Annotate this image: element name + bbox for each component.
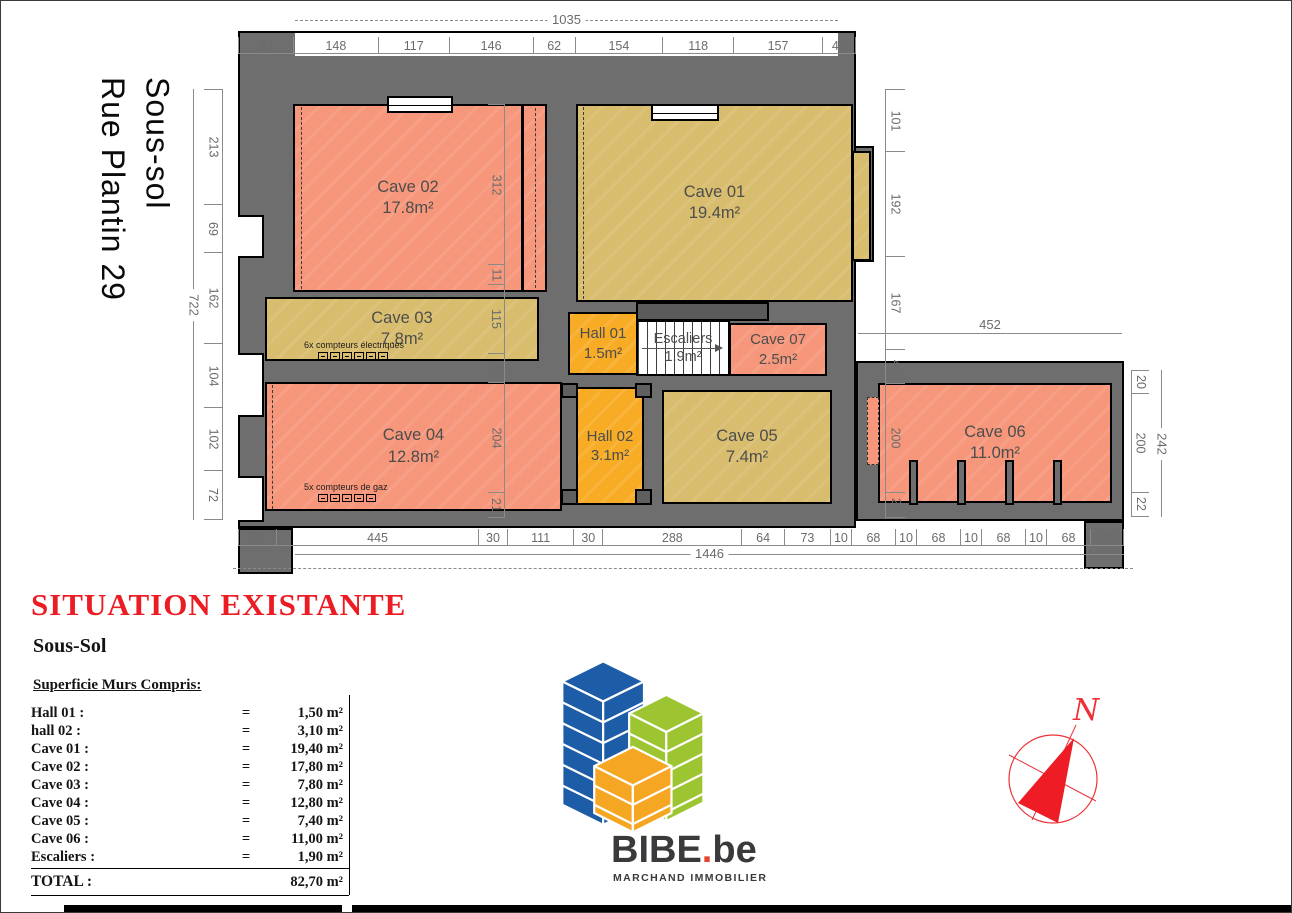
total-row: TOTAL : 82,70 m² — [31, 873, 343, 891]
total-value: 82,70 m² — [253, 874, 343, 891]
gas-meter-icons — [318, 494, 376, 502]
isolation-strip — [522, 104, 547, 292]
dim-segment: 40 — [1091, 529, 1124, 545]
table-border-bottom — [31, 895, 349, 896]
dim-value: 111 — [530, 531, 551, 545]
dim-segment: 154 — [576, 37, 663, 53]
legend-row: Cave 04 :=12,80 m² — [31, 795, 343, 813]
legend-section-heading: Superficie Murs Compris: — [33, 677, 201, 694]
dim-chain-far-right: 2020022 — [1131, 370, 1149, 517]
dim-value: 40 — [889, 359, 903, 375]
dim-segment: 62 — [534, 37, 576, 53]
dim-value: 72 — [206, 487, 220, 503]
area-table: Hall 01 :=1,50 m²hall 02 :=3,10 m²Cave 0… — [31, 705, 343, 867]
room-area: 19.4m² — [689, 203, 740, 224]
dim-value: 69 — [206, 221, 220, 237]
window-cave-01 — [651, 104, 719, 121]
dim-value: 204 — [489, 426, 503, 449]
dim-chain-right: 1011921674020022 — [885, 89, 905, 518]
dim-segment: 72 — [204, 471, 222, 520]
room-hall-02: Hall 02 3.1m² — [576, 387, 644, 505]
dim-value: 93 — [258, 39, 274, 53]
room-area: 2.5m² — [759, 350, 797, 370]
drawing-title: SITUATION EXISTANTE — [31, 587, 406, 623]
dim-total-top: 1035 — [295, 20, 838, 21]
room-name: Hall 02 — [587, 427, 634, 447]
dim-value: 10 — [833, 531, 849, 545]
dim-segment: 445 — [277, 529, 479, 545]
meter-icon — [354, 352, 364, 360]
dim-segment: 68 — [917, 529, 961, 545]
dim-value: 22 — [889, 497, 903, 513]
dim-segment: 148 — [294, 37, 379, 53]
table-border-right — [349, 695, 350, 895]
room-area: 12.8m² — [388, 447, 439, 468]
dim-value: 10 — [963, 531, 979, 545]
dim-segment: 288 — [603, 529, 742, 545]
dim-value: 10 — [898, 531, 914, 545]
dim-segment: 20 — [1132, 370, 1149, 394]
dim-segment: 10 — [896, 529, 917, 545]
dim-value: 445 — [366, 531, 389, 545]
wall-stub — [561, 383, 578, 398]
room-escaliers: Escaliers 1.9m² — [636, 320, 730, 376]
room-cave-07: Cave 07 2.5m² — [729, 323, 827, 376]
legend-row: Cave 01 :=19,40 m² — [31, 741, 343, 759]
room-cave-01-bay — [852, 151, 871, 261]
dim-value: 68 — [931, 531, 947, 545]
wall-tooth — [957, 460, 966, 505]
room-name: Cave 05 — [716, 426, 777, 447]
meter-icon — [342, 494, 352, 502]
dim-value: 452 — [974, 317, 1006, 332]
dim-chain-left: 2136916210410272 — [204, 89, 223, 520]
room-area: 3.1m² — [591, 446, 629, 466]
logo-tagline: MARCHAND IMMOBILIER — [613, 872, 767, 884]
stair-lintel-wall — [636, 302, 769, 321]
dim-value: 118 — [687, 39, 709, 53]
dim-value: 104 — [206, 364, 220, 387]
wall-stub — [635, 489, 652, 505]
room-name: Cave 02 — [377, 177, 438, 198]
dim-segment: 21 — [488, 493, 504, 518]
dim-segment: 192 — [886, 152, 905, 257]
dim-segment: 157 — [734, 37, 822, 53]
dim-value: 102 — [206, 428, 220, 451]
dim-segment: 11 — [488, 265, 504, 285]
dim-segment: 69 — [204, 205, 222, 253]
annotation-electric-meters: 6x compteurs électriques — [304, 340, 404, 350]
dim-value: 68 — [865, 531, 881, 545]
dim-value: 1035 — [547, 12, 586, 27]
legend-row: hall 02 :=3,10 m² — [31, 723, 343, 741]
dim-value: 1446 — [690, 546, 729, 561]
dim-segment: 93 — [238, 37, 294, 53]
dim-segment: 30 — [479, 529, 508, 545]
dim-value: 288 — [661, 531, 684, 545]
dim-value: 200 — [1134, 432, 1148, 455]
legend-row: Cave 02 :=17,80 m² — [31, 759, 343, 777]
wall-stub — [635, 383, 652, 398]
room-name: Escaliers — [654, 330, 713, 348]
dim-value: 30 — [485, 531, 501, 545]
level-subtitle: Sous-Sol — [33, 635, 106, 658]
dim-value: 213 — [206, 136, 220, 159]
logo-tld: be — [712, 829, 756, 871]
titleblock-edge — [64, 905, 1292, 913]
room-area: 17.8m² — [382, 198, 433, 219]
dim-segment: 22 — [886, 493, 905, 518]
titleblock-edge-gap — [342, 905, 352, 913]
dim-value: 115 — [489, 308, 503, 330]
window-cave-02 — [387, 96, 453, 113]
room-cave-01: Cave 01 19.4m² — [576, 104, 853, 302]
dim-segment: 40 — [823, 37, 856, 53]
axis-line-bottom — [233, 568, 1133, 569]
dim-value: 11 — [489, 267, 503, 282]
dim-value: 64 — [755, 531, 771, 545]
room-name: Cave 03 — [371, 308, 432, 329]
legend-row: Cave 03 :=7,80 m² — [31, 777, 343, 795]
bibe-logo-wordmark: BIBE.be — [611, 829, 757, 872]
facade-notch-1 — [238, 215, 264, 258]
door-opening-cave-06 — [867, 397, 879, 465]
room-name: Hall 01 — [580, 324, 627, 344]
facade-notch-3 — [238, 476, 264, 522]
meter-icon — [366, 352, 376, 360]
dim-value: 32 — [489, 360, 503, 376]
dim-value: 200 — [889, 426, 903, 449]
electric-meter-icons — [318, 352, 388, 360]
dim-value: 62 — [546, 39, 562, 53]
dim-segment: 200 — [1132, 394, 1149, 492]
dim-value: 20 — [1134, 374, 1148, 390]
room-area: 1.5m² — [584, 344, 622, 364]
annotation-gas-meters: 5x compteurs de gaz — [304, 482, 388, 492]
meter-icon — [366, 494, 376, 502]
dim-value: 157 — [767, 39, 790, 53]
wall-liner-dashed — [301, 107, 302, 289]
dim-segment: 117 — [379, 37, 450, 53]
room-cave-05: Cave 05 7.4m² — [662, 390, 832, 504]
room-name: Cave 07 — [750, 330, 806, 350]
dim-segment: 162 — [204, 253, 222, 344]
dim-value: 101 — [889, 109, 903, 132]
level-label: Sous-sol — [135, 77, 179, 407]
dim-segment: 200 — [886, 384, 905, 493]
legend-row: Cave 06 :=11,00 m² — [31, 831, 343, 849]
dim-value: 722 — [187, 289, 202, 321]
dim-segment: 312 — [488, 104, 504, 265]
legend-row: Hall 01 :=1,50 m² — [31, 705, 343, 723]
table-separator — [31, 868, 349, 869]
dim-value: 146 — [480, 39, 503, 53]
wall-liner-dashed — [583, 107, 584, 299]
room-area: 7.4m² — [726, 447, 768, 468]
dim-value: 22 — [1134, 496, 1148, 512]
dim-value: 312 — [489, 173, 503, 196]
dim-total-left: 722 — [193, 89, 194, 520]
facade-notch-2 — [238, 353, 264, 417]
room-name: Cave 01 — [684, 182, 745, 203]
meter-icon — [330, 352, 340, 360]
dim-value: 73 — [799, 531, 815, 545]
logo-dot: . — [702, 829, 713, 871]
dim-segment: 53 — [238, 529, 277, 545]
dim-value: 68 — [996, 531, 1012, 545]
dim-value: 40 — [831, 39, 847, 53]
dim-segment: 10 — [831, 529, 852, 545]
dim-value: 68 — [1061, 531, 1077, 545]
dim-total-bottom: 1446 — [295, 554, 1124, 555]
wall-stub — [561, 489, 578, 505]
dim-segment: 68 — [1047, 529, 1091, 545]
logo-brand: BIBE — [611, 829, 702, 871]
dim-segment: 104 — [204, 344, 222, 408]
dim-segment: 115 — [488, 285, 504, 353]
dim-segment: 68 — [982, 529, 1026, 545]
dim-value: 10 — [1028, 531, 1044, 545]
dim-segment: 32 — [488, 354, 504, 384]
dim-value: 53 — [250, 531, 266, 545]
total-label: TOTAL : — [31, 873, 253, 891]
dim-segment: 111 — [508, 529, 574, 545]
dim-segment: 167 — [886, 257, 905, 350]
dim-segment: 10 — [1026, 529, 1047, 545]
dim-wing-top: 452 — [858, 333, 1122, 334]
legend-row: Cave 05 :=7,40 m² — [31, 813, 343, 831]
dim-segment: 30 — [574, 529, 603, 545]
dim-value: 192 — [889, 193, 903, 216]
wall-tooth — [1005, 460, 1014, 505]
dim-segment: 40 — [886, 350, 905, 384]
room-name: Cave 06 — [964, 422, 1025, 443]
dim-chain-top: 931481171466215411815740 — [238, 37, 856, 54]
meter-icon — [378, 352, 388, 360]
dim-value: 167 — [889, 292, 903, 315]
meter-icon — [342, 352, 352, 360]
dim-segment: 73 — [785, 529, 831, 545]
plan-vertical-title: Sous-sol Rue Plantin 29 — [91, 77, 179, 407]
dim-segment: 118 — [663, 37, 734, 53]
dim-segment: 213 — [204, 89, 222, 205]
floorplan-sheet: Cave 02 17.8m² Cave 01 19.4m² Cave 03 7.… — [0, 0, 1292, 913]
meter-icon — [330, 494, 340, 502]
wall-liner-dashed — [272, 385, 273, 509]
dim-chain-interior: 312111153220421 — [488, 104, 505, 518]
dim-value: 30 — [580, 531, 596, 545]
dim-segment: 68 — [852, 529, 896, 545]
dim-value: 117 — [403, 39, 425, 53]
dim-value: 242 — [1155, 428, 1170, 460]
dim-chain-bottom: 5344530111302886473106810681068106840 — [238, 529, 1124, 546]
dim-value: 40 — [1099, 531, 1115, 545]
street-label: Rue Plantin 29 — [91, 77, 135, 407]
dim-segment: 10 — [961, 529, 982, 545]
legend-row: Escaliers :=1,90 m² — [31, 849, 343, 867]
meter-icon — [354, 494, 364, 502]
dim-value: 154 — [607, 39, 630, 53]
dim-value: 162 — [206, 287, 220, 310]
dim-segment: 64 — [742, 529, 785, 545]
meter-icon — [318, 494, 328, 502]
dim-segment: 101 — [886, 89, 905, 152]
dim-value: 21 — [489, 497, 503, 513]
wall-tooth — [1053, 460, 1062, 505]
room-hall-01: Hall 01 1.5m² — [568, 312, 638, 375]
room-area: 1.9m² — [664, 348, 701, 366]
dim-value: 148 — [324, 39, 347, 53]
meter-icon — [318, 352, 328, 360]
bibe-logo-icon — [515, 654, 721, 836]
dim-segment: 102 — [204, 408, 222, 471]
wall-tooth — [909, 460, 918, 505]
dim-segment: 204 — [488, 383, 504, 493]
dim-segment: 22 — [1132, 493, 1149, 517]
room-name: Cave 04 — [383, 425, 444, 446]
dim-segment: 146 — [450, 37, 534, 53]
dim-total-far-right: 242 — [1161, 370, 1162, 517]
north-letter: N — [1073, 693, 1099, 728]
